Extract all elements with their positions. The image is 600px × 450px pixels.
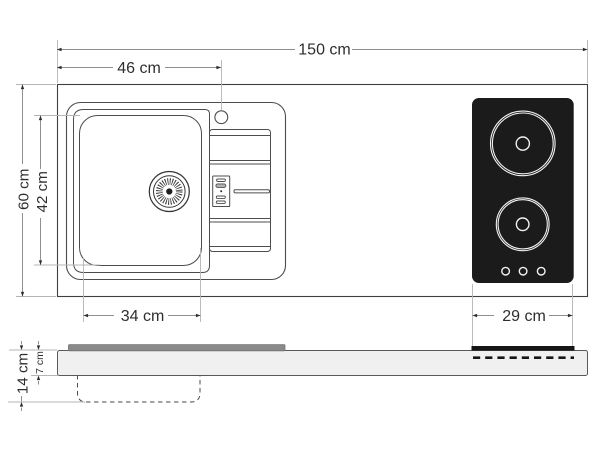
svg-text:14 cm: 14 cm — [14, 353, 31, 394]
svg-text:42 cm: 42 cm — [34, 171, 51, 212]
svg-text:46 cm: 46 cm — [117, 60, 161, 77]
svg-text:60 cm: 60 cm — [15, 169, 32, 210]
svg-text:7 cm: 7 cm — [34, 351, 46, 374]
svg-text:34 cm: 34 cm — [121, 308, 165, 325]
svg-text:150 cm: 150 cm — [298, 42, 350, 59]
svg-text:29 cm: 29 cm — [502, 308, 546, 325]
